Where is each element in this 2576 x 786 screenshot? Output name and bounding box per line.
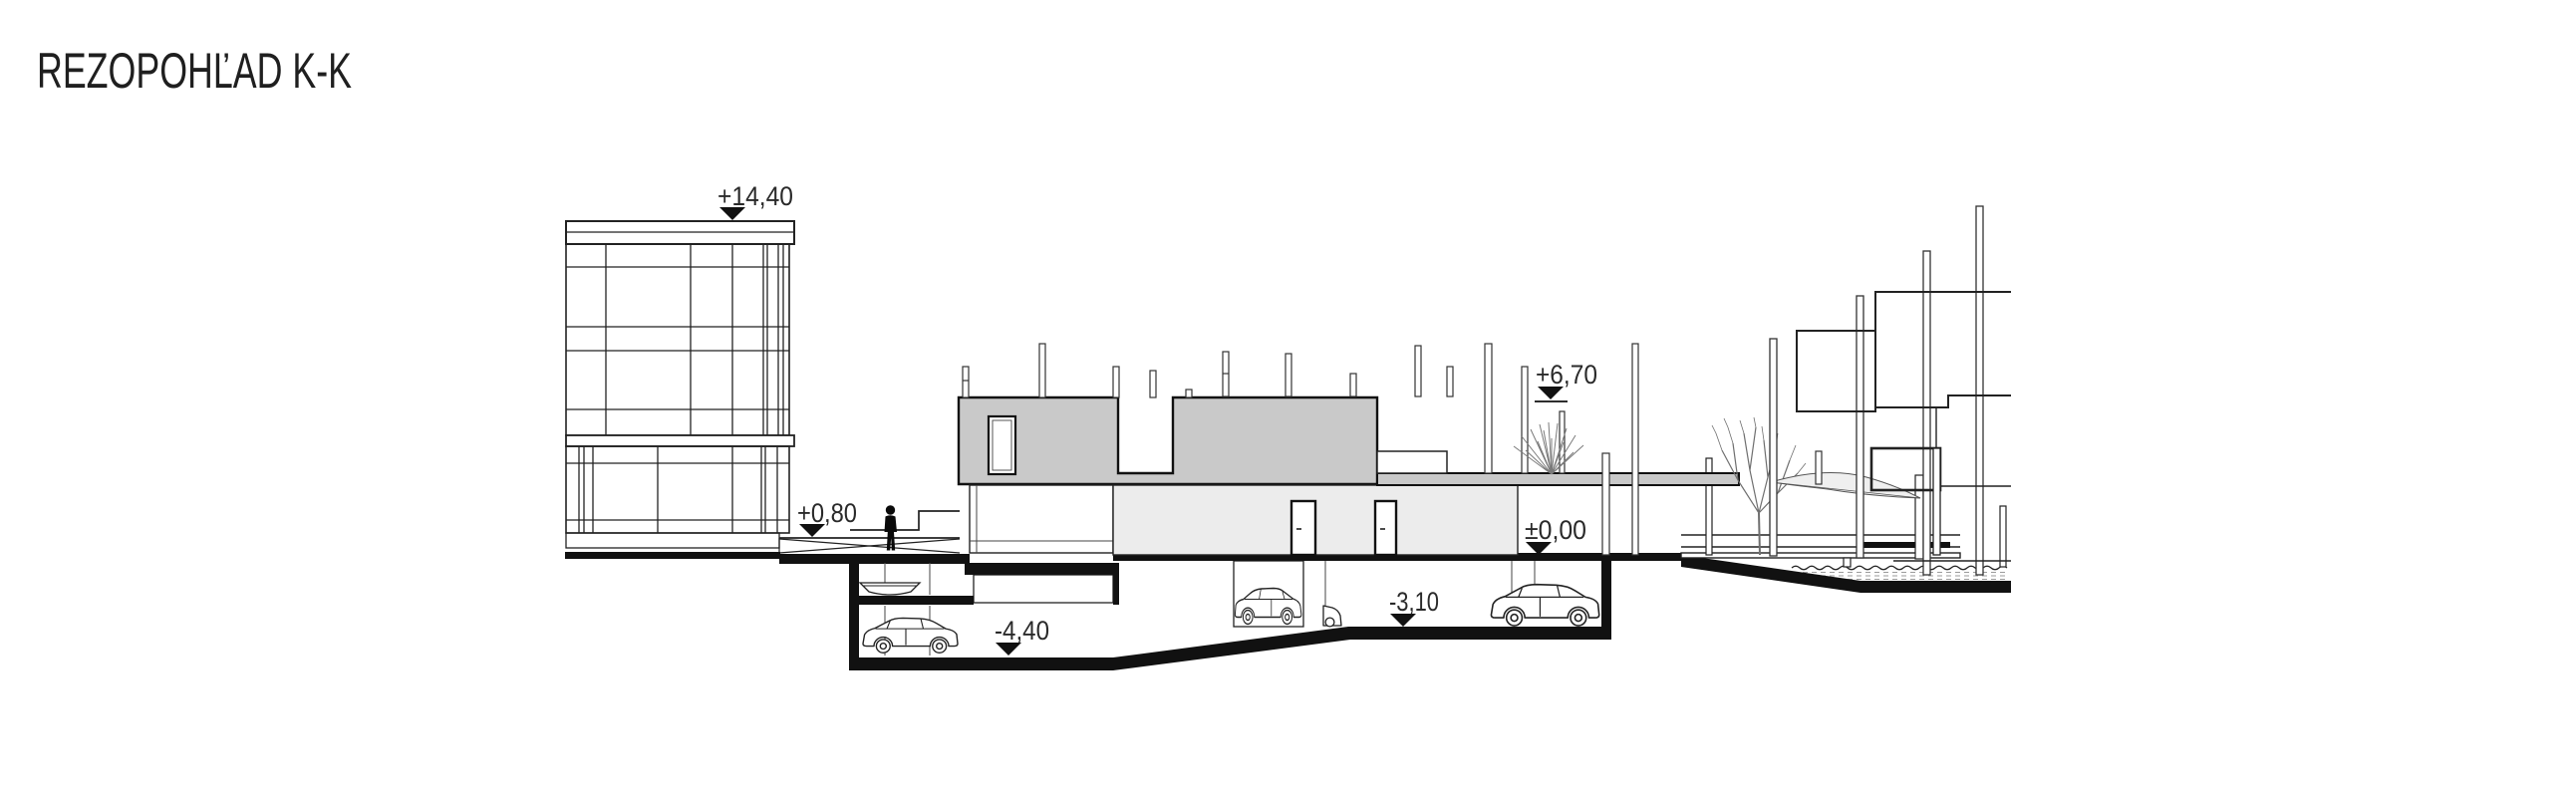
car-suv-right-garage-icon (1491, 585, 1598, 626)
ground-slope-right (1681, 555, 1860, 593)
drawing-sheet: +14,40 +0,80 +6,70 ±0,00 -3,10 -4,40 REZ… (0, 0, 2576, 786)
pier-pile (1844, 558, 1851, 567)
water-wavy-line (1792, 566, 2007, 570)
central-building (959, 344, 1739, 555)
lower-facade-grid (566, 446, 789, 533)
car-front-partial-icon (1323, 606, 1341, 627)
entrance-lower-slab (965, 563, 1118, 575)
roof-posts (963, 344, 1453, 397)
left-building (566, 221, 794, 548)
ramp-slab (779, 554, 970, 564)
entrance-steps (850, 511, 960, 530)
roof-deck-box (1377, 451, 1447, 473)
ground-floor-recess (970, 485, 1113, 553)
left-building-upper-facade (566, 244, 789, 435)
river-bed-slab (1860, 581, 2011, 593)
level-marker-plus-6-70: +6,70 (1535, 360, 1597, 401)
level-label: -3,10 (1389, 587, 1439, 617)
page-title: REZOPOHĽAD K-K (37, 43, 352, 99)
level-label: ±0,00 (1525, 515, 1586, 545)
level-marker-zero: ±0,00 (1525, 515, 1586, 555)
basement-wall-right (1601, 558, 1611, 640)
car-hatchback-left-garage-icon (863, 618, 958, 653)
level-label: +14,40 (717, 181, 793, 211)
basement-mid-slab (850, 596, 974, 605)
door (1291, 501, 1315, 555)
level-label: -4,40 (995, 616, 1049, 646)
level-marker-minus-3-10: -3,10 (1389, 587, 1439, 627)
basement-bottom-slab (849, 627, 1611, 670)
upper-facade-grid (566, 244, 789, 435)
canopy-roof-slab (1377, 473, 1739, 485)
door (1375, 501, 1396, 555)
level-marker-plus-0-80: +0,80 (797, 498, 857, 537)
left-building-floor-band (566, 435, 794, 446)
level-marker-plus-14-40: +14,40 (717, 181, 793, 220)
level-label: +6,70 (1536, 360, 1597, 390)
railing-post (1915, 475, 1923, 559)
boat-outline (860, 583, 920, 595)
ground-line-left (565, 552, 780, 559)
upper-floor-volume (959, 397, 1377, 484)
basement-room-box (974, 575, 1113, 603)
level-marker-minus-4-40: -4,40 (995, 616, 1049, 655)
section-drawing: +14,40 +0,80 +6,70 ±0,00 -3,10 -4,40 REZ… (0, 0, 2576, 786)
basement-wall-left (849, 561, 859, 669)
pier-end-post (2000, 506, 2006, 567)
level-label: +0,80 (797, 498, 857, 528)
left-building-plinth (566, 533, 779, 548)
